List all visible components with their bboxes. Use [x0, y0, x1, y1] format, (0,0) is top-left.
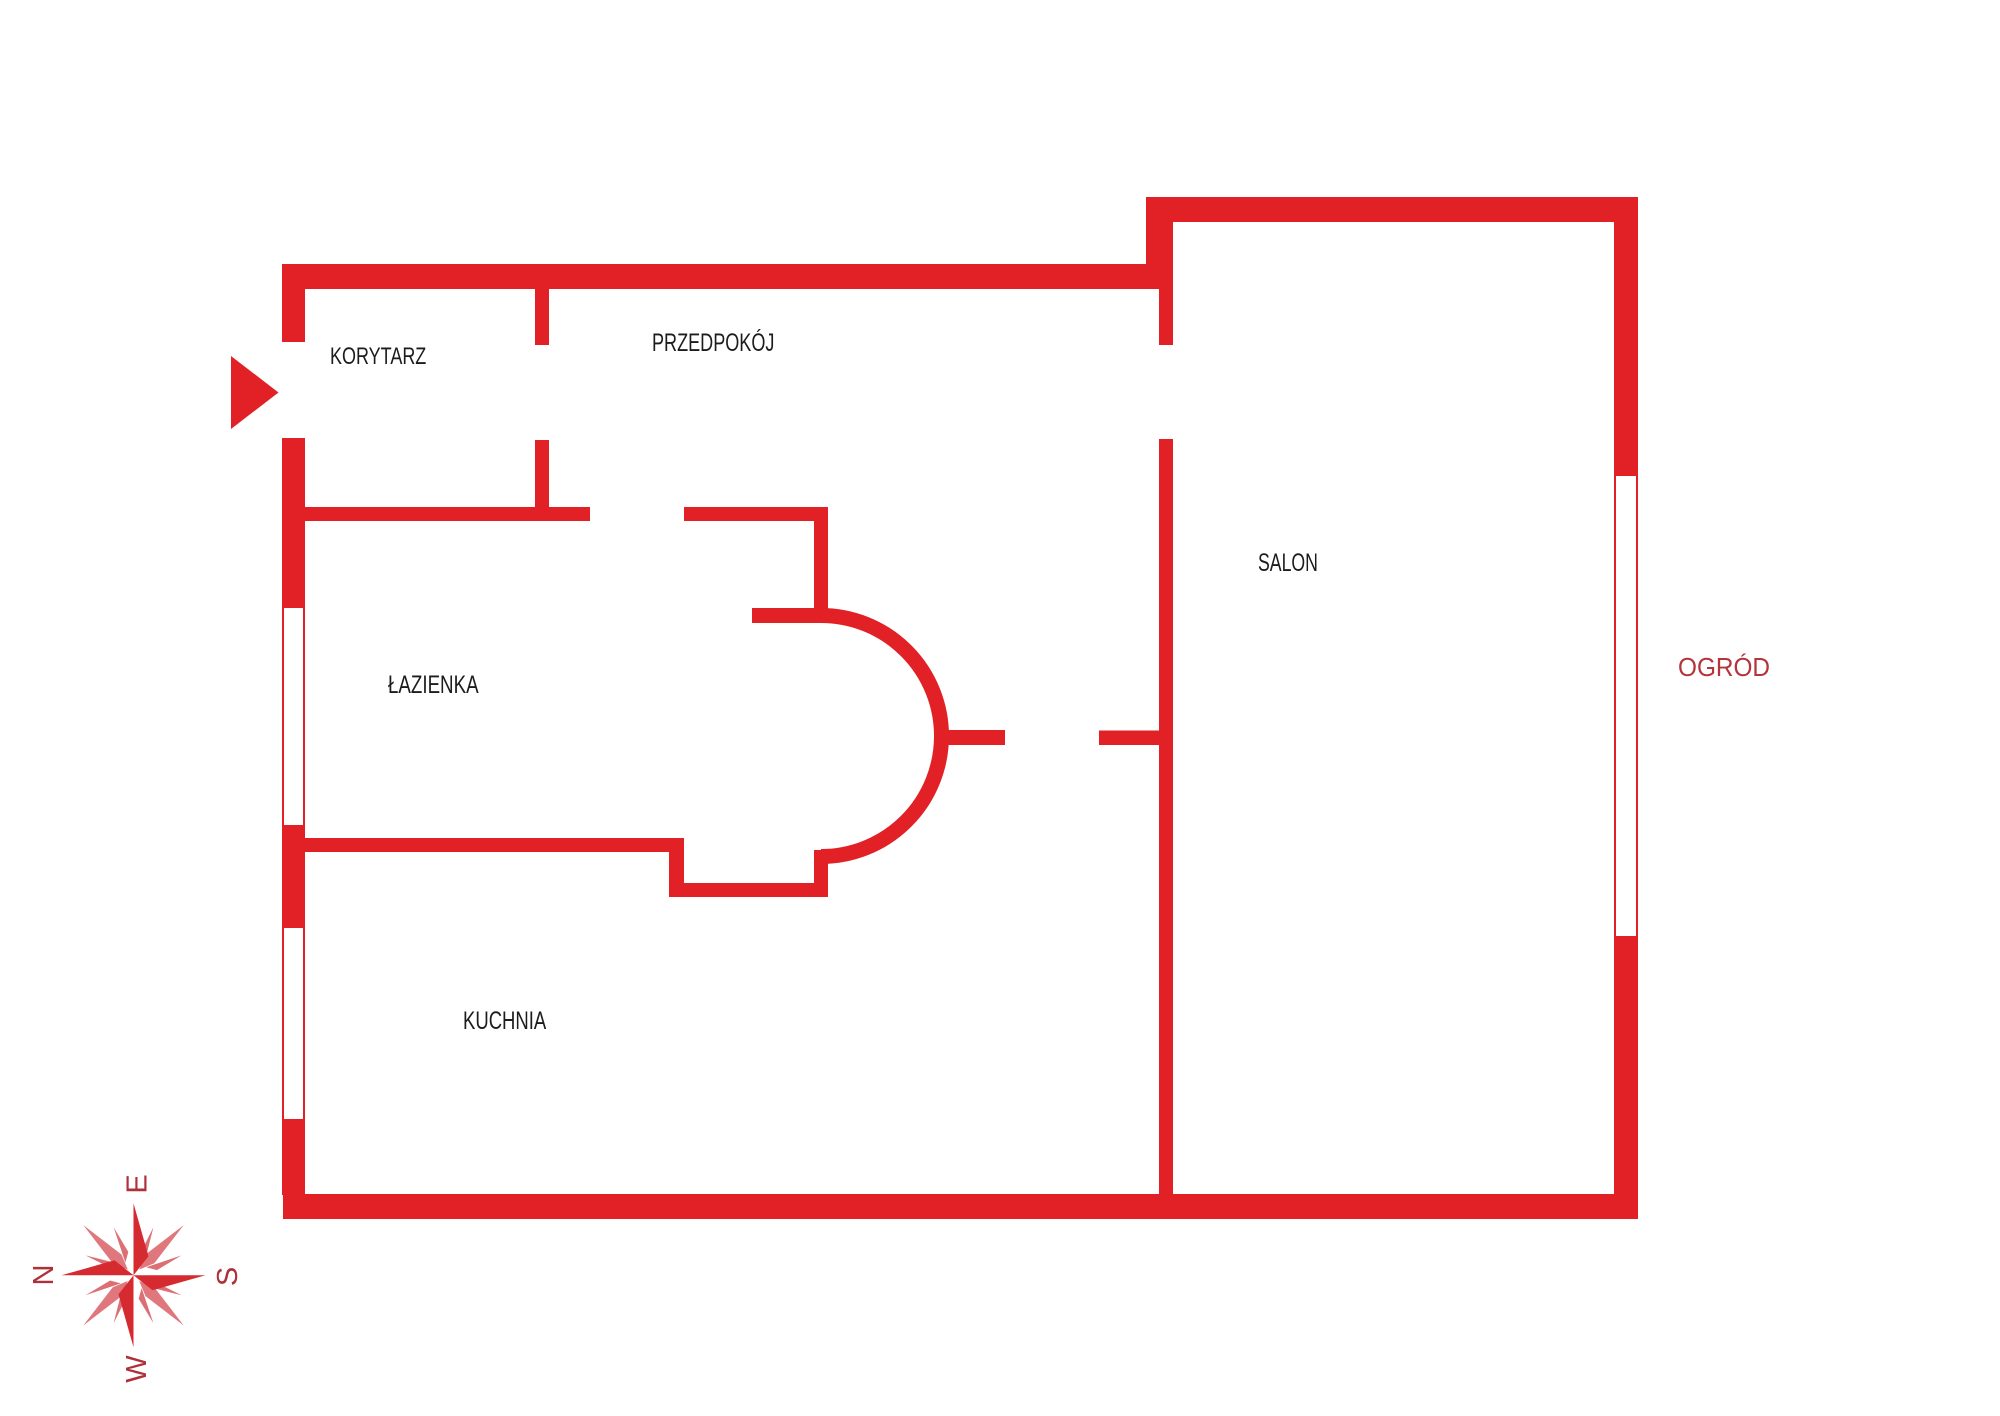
svg-text:KORYTARZ: KORYTARZ — [330, 344, 426, 370]
svg-text:W: W — [121, 1355, 153, 1383]
svg-text:S: S — [212, 1267, 244, 1286]
svg-text:ŁAZIENKA: ŁAZIENKA — [388, 670, 479, 698]
svg-text:OGRÓD: OGRÓD — [1678, 652, 1770, 682]
svg-text:SALON: SALON — [1258, 548, 1318, 577]
svg-text:KUCHNIA: KUCHNIA — [463, 1006, 547, 1034]
svg-text:PRZEDPOKÓJ: PRZEDPOKÓJ — [652, 328, 774, 357]
svg-text:N: N — [28, 1265, 60, 1286]
svg-text:E: E — [122, 1174, 154, 1193]
